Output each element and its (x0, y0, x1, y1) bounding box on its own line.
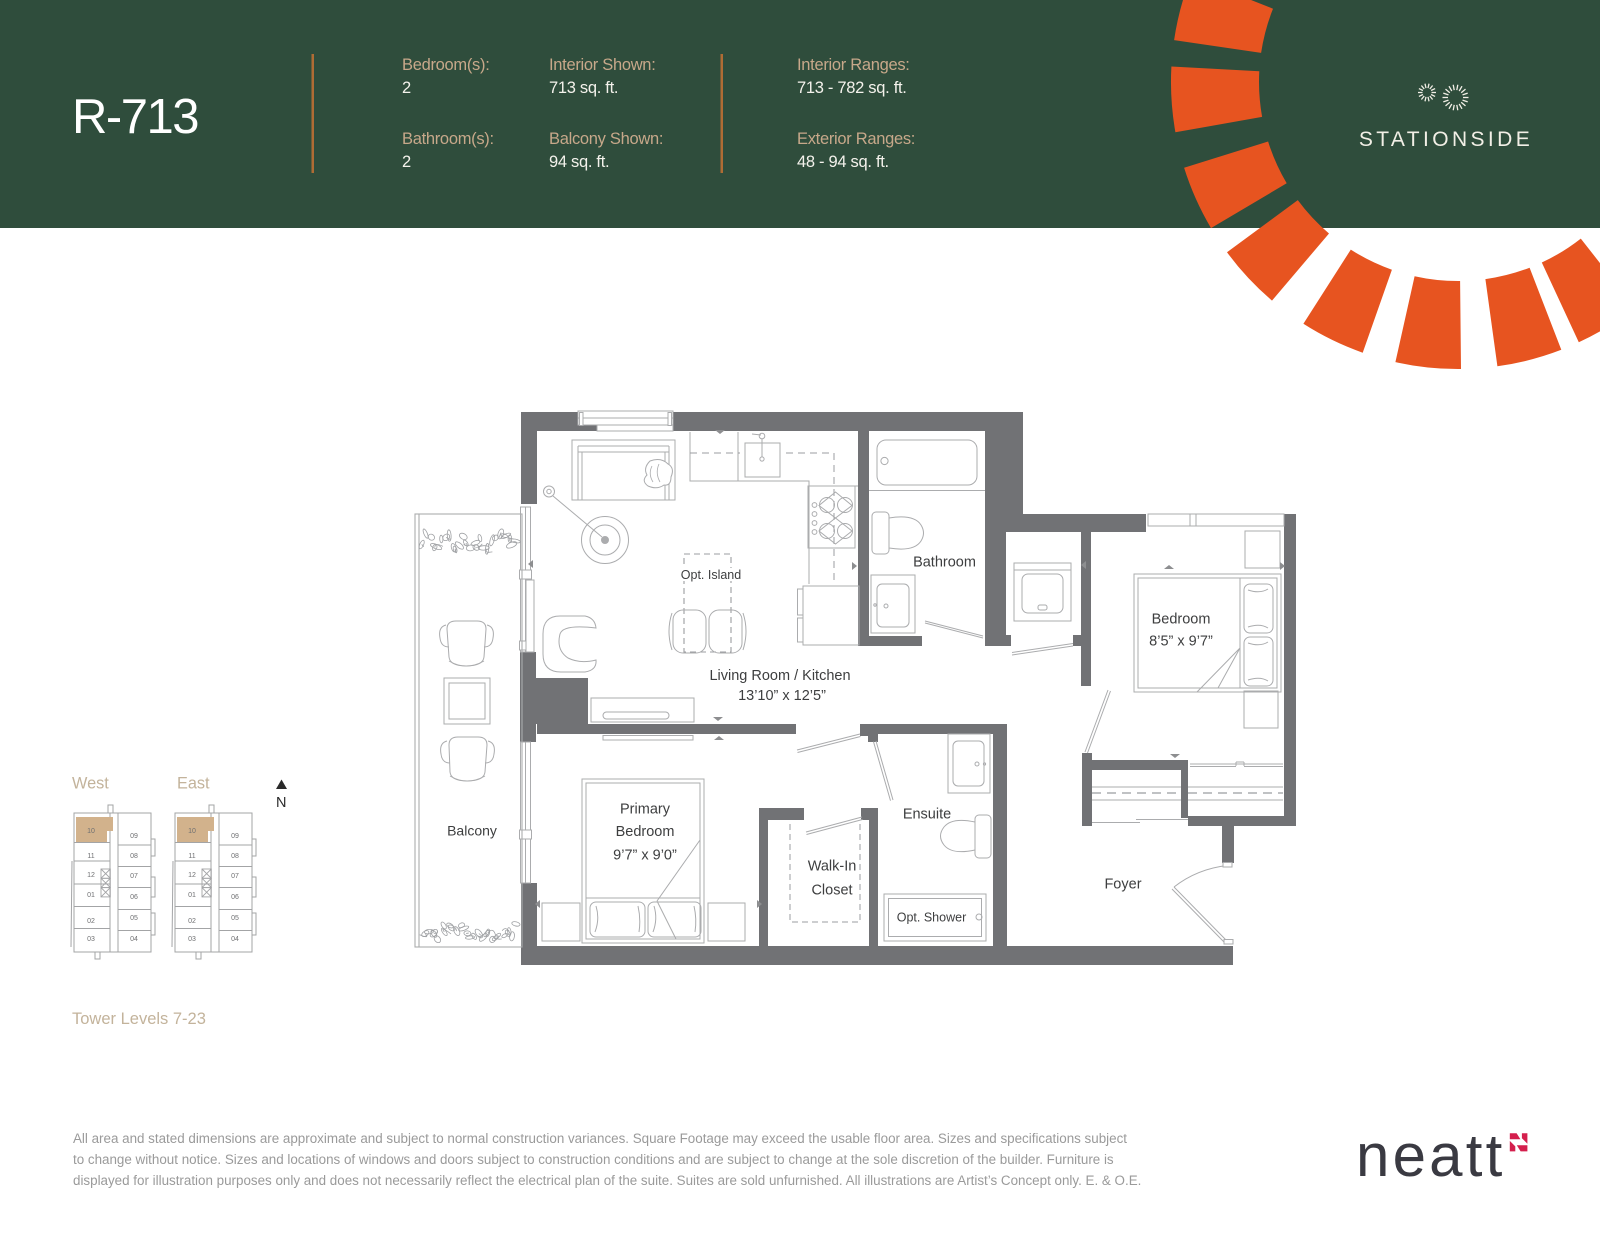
svg-text:08: 08 (130, 853, 138, 860)
svg-text:06: 06 (231, 894, 239, 901)
svg-text:Foyer: Foyer (1104, 877, 1141, 893)
svg-text:09: 09 (130, 833, 138, 840)
svg-text:01: 01 (188, 892, 196, 899)
svg-text:02: 02 (87, 918, 95, 925)
svg-text:8’5” x 9’7”: 8’5” x 9’7” (1149, 634, 1213, 650)
svg-text:09: 09 (231, 833, 239, 840)
svg-text:Closet: Closet (811, 883, 852, 899)
svg-text:713 sq. ft.: 713 sq. ft. (549, 79, 618, 97)
svg-text:Bedroom: Bedroom (616, 824, 675, 840)
svg-text:R-713: R-713 (72, 90, 198, 144)
svg-text:07: 07 (231, 873, 239, 880)
svg-text:Opt. Island: Opt. Island (681, 568, 741, 582)
svg-text:94 sq. ft.: 94 sq. ft. (549, 153, 609, 171)
svg-text:STATIONSIDE: STATIONSIDE (1359, 128, 1533, 151)
svg-text:Interior Shown:: Interior Shown: (549, 56, 655, 74)
svg-text:Exterior Ranges:: Exterior Ranges: (797, 130, 915, 148)
svg-text:N: N (276, 795, 286, 811)
svg-text:Bathroom: Bathroom (913, 555, 976, 571)
svg-text:Bedroom: Bedroom (1152, 612, 1211, 628)
svg-text:West: West (72, 775, 109, 793)
svg-text:12: 12 (188, 872, 196, 879)
svg-text:Balcony Shown:: Balcony Shown: (549, 130, 663, 148)
svg-text:10: 10 (188, 828, 196, 835)
svg-text:Balcony: Balcony (447, 823, 497, 839)
svg-text:2: 2 (402, 153, 411, 171)
svg-text:11: 11 (87, 853, 94, 860)
svg-text:2: 2 (402, 79, 411, 97)
svg-text:05: 05 (231, 915, 239, 922)
svg-text:06: 06 (130, 894, 138, 901)
svg-text:04: 04 (130, 936, 138, 943)
svg-text:Primary: Primary (620, 802, 671, 818)
svg-text:05: 05 (130, 915, 138, 922)
svg-text:Interior Ranges:: Interior Ranges: (797, 56, 910, 74)
svg-text:All area and stated dimensions: All area and stated dimensions are appro… (73, 1131, 1127, 1146)
svg-text:04: 04 (231, 936, 239, 943)
svg-text:07: 07 (130, 873, 138, 880)
svg-text:Living Room / Kitchen: Living Room / Kitchen (709, 668, 850, 684)
svg-text:neatt: neatt (1356, 1122, 1505, 1189)
svg-text:Opt. Shower: Opt. Shower (897, 911, 966, 925)
svg-text:East: East (177, 775, 210, 793)
svg-text:11: 11 (188, 853, 195, 860)
svg-text:9’7” x 9’0”: 9’7” x 9’0” (613, 848, 677, 864)
svg-text:01: 01 (87, 892, 95, 899)
svg-text:Bedroom(s):: Bedroom(s): (402, 56, 489, 74)
svg-text:713 - 782 sq. ft.: 713 - 782 sq. ft. (797, 79, 907, 97)
svg-text:12: 12 (87, 872, 95, 879)
svg-text:10: 10 (87, 828, 95, 835)
svg-text:08: 08 (231, 853, 239, 860)
svg-text:03: 03 (188, 936, 196, 943)
svg-text:13’10” x 12’5”: 13’10” x 12’5” (738, 688, 826, 704)
svg-text:Walk-In: Walk-In (808, 859, 857, 875)
svg-text:Ensuite: Ensuite (903, 807, 951, 823)
svg-text:displayed for illustration pur: displayed for illustration purposes only… (73, 1173, 1141, 1188)
svg-text:03: 03 (87, 936, 95, 943)
svg-text:02: 02 (188, 918, 196, 925)
svg-text:48 - 94 sq. ft.: 48 - 94 sq. ft. (797, 153, 889, 171)
svg-text:Bathroom(s):: Bathroom(s): (402, 130, 494, 148)
svg-text:to change without notice. Size: to change without notice. Sizes and loca… (73, 1152, 1114, 1167)
svg-text:Tower Levels 7-23: Tower Levels 7-23 (72, 1010, 206, 1028)
